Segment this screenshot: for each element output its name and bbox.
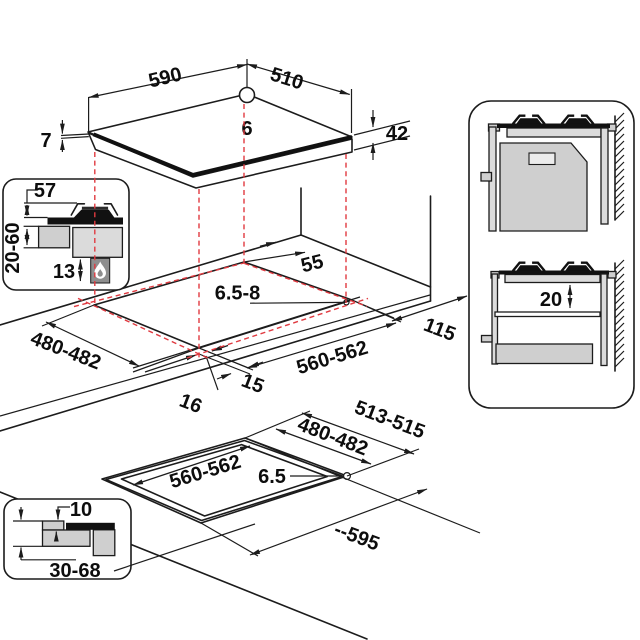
svg-text:57: 57 bbox=[34, 180, 56, 202]
svg-text:7: 7 bbox=[40, 130, 51, 152]
svg-text:6.5-8: 6.5-8 bbox=[215, 282, 261, 304]
svg-text:20-60: 20-60 bbox=[2, 222, 24, 273]
svg-text:10: 10 bbox=[70, 499, 92, 521]
svg-text:42: 42 bbox=[386, 123, 408, 145]
svg-text:20: 20 bbox=[540, 289, 562, 311]
svg-text:30-68: 30-68 bbox=[49, 560, 100, 582]
svg-text:6.5: 6.5 bbox=[258, 466, 286, 488]
svg-text:6: 6 bbox=[241, 118, 252, 140]
svg-text:13: 13 bbox=[53, 261, 75, 283]
